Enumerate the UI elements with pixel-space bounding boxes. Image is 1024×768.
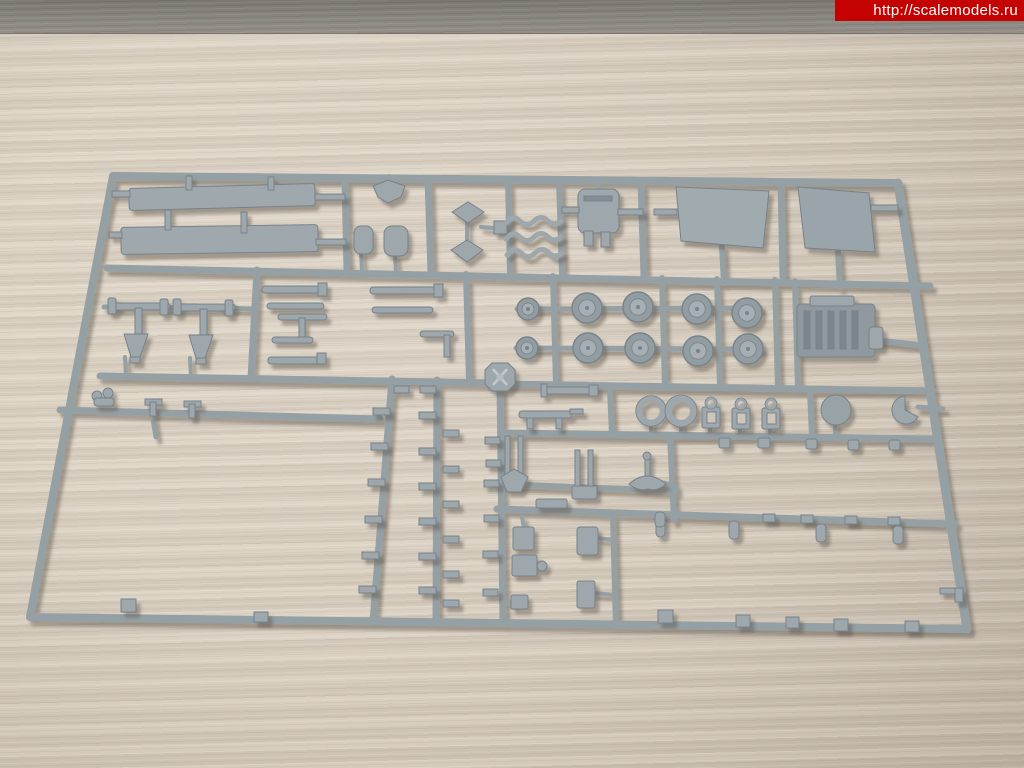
sprue-runner — [466, 274, 469, 381]
small-part-tab — [483, 551, 498, 558]
sprue-runner — [810, 391, 812, 436]
loop-box-eye — [767, 400, 776, 409]
wing-panel — [798, 187, 875, 252]
loop-box-eye — [737, 400, 746, 409]
gun-rod — [519, 411, 572, 418]
gear-spat-stem — [200, 309, 207, 335]
sprue-runner — [553, 276, 556, 385]
wing-panel — [676, 187, 769, 248]
wheel-axle — [695, 307, 699, 311]
small-part-tab — [848, 440, 859, 450]
strut-rod-link — [444, 335, 450, 357]
sprue-connector — [241, 212, 247, 233]
engine-bulkhead-arm — [618, 209, 643, 215]
small-box-part — [513, 527, 534, 550]
small-lobe-base — [94, 398, 114, 406]
small-part-tab — [419, 587, 436, 594]
strut-rod — [272, 337, 313, 343]
sprue-runner — [125, 357, 126, 377]
gear-spat-end — [225, 300, 233, 316]
cowl-ring — [639, 399, 663, 423]
gear-spat-end — [108, 298, 116, 314]
upper-wing-strip — [129, 184, 316, 211]
sprue-runner — [190, 358, 191, 378]
injection-gate-center — [497, 374, 504, 381]
sprue-runner — [775, 280, 778, 389]
small-part-tab — [365, 516, 382, 523]
fork-prong — [588, 450, 593, 489]
gun-rod-leg — [556, 418, 562, 429]
gun-rod — [545, 387, 592, 394]
small-part-tab — [254, 612, 268, 622]
sprue-connector — [268, 177, 274, 190]
sprue-runner — [597, 538, 614, 540]
sprue-connector — [109, 232, 122, 238]
gun-rod-fitting — [589, 385, 598, 396]
watermark-url: http://scalemodels.ru — [873, 2, 1018, 19]
fork-prong — [575, 450, 580, 489]
small-knob — [537, 561, 547, 571]
bracket-part — [373, 180, 405, 203]
flat-plate-part — [536, 499, 567, 508]
strut-rod — [370, 287, 441, 294]
small-part-tab — [443, 571, 459, 578]
photo-model-kit-sprue: http://scalemodels.ru — [0, 0, 1024, 768]
wing-panel-arm — [654, 209, 677, 215]
small-part-tab — [394, 386, 409, 393]
small-part-tab — [443, 501, 459, 508]
hub-diamond-part — [452, 202, 484, 223]
sprue-runner — [838, 252, 840, 287]
exhaust-manifold — [507, 250, 562, 257]
wheel-axle — [696, 349, 700, 353]
hub-diamond-part — [451, 240, 483, 262]
lower-wing-strip — [121, 225, 318, 255]
sprue-runner — [500, 383, 503, 624]
runner-stud — [816, 524, 826, 542]
small-part-tab — [420, 386, 436, 393]
small-part-tab — [362, 552, 379, 559]
sprue-runner — [641, 181, 644, 276]
small-box-part — [511, 595, 528, 609]
wheel-axle — [586, 346, 590, 350]
engine-block-rib — [828, 311, 834, 349]
small-part-tab — [371, 443, 388, 450]
small-part-tab — [419, 518, 436, 525]
strut-rod — [372, 307, 433, 313]
small-lobe-part — [103, 388, 113, 398]
small-part-tab — [484, 480, 499, 487]
small-part-tab — [719, 438, 730, 448]
wheel-axle — [636, 305, 640, 309]
sprue-parts — [92, 176, 963, 632]
small-part-tab — [845, 516, 857, 524]
runner-stud — [729, 521, 739, 539]
engine-block-rib — [804, 311, 810, 349]
small-part-tab — [889, 440, 900, 450]
gear-spat-stem — [135, 308, 142, 334]
strut-rod — [268, 357, 323, 364]
cowl-pacman-part — [892, 396, 918, 424]
small-part-tab — [905, 621, 919, 632]
plastic-sprue — [0, 0, 1024, 768]
sprue-runner — [345, 178, 347, 271]
sprue-runner — [722, 247, 724, 283]
engine-block-top — [810, 296, 854, 306]
small-part-tab — [763, 514, 775, 522]
small-part-tab — [443, 430, 459, 437]
runner-stud — [893, 526, 903, 544]
sprue-runner — [153, 419, 156, 437]
sprue-runner — [613, 517, 616, 626]
sprue-runner — [662, 278, 665, 387]
sprue-connector — [186, 176, 192, 190]
small-part-tab — [419, 553, 436, 560]
small-part-tab — [786, 617, 799, 628]
engine-block-rib — [816, 311, 822, 349]
edge-hook-part — [955, 588, 963, 602]
small-part-tab — [801, 515, 813, 523]
small-part-tab — [483, 589, 498, 596]
engine-block-lug — [869, 327, 883, 349]
gun-rod-tip — [570, 409, 583, 414]
small-part-tab — [888, 517, 900, 525]
wheel-axle — [585, 306, 589, 310]
small-part-tab — [373, 408, 390, 415]
gear-spat-cone — [124, 334, 148, 357]
small-part-tab — [443, 466, 459, 473]
small-part-tab — [736, 615, 750, 627]
wheel-axle — [746, 347, 750, 351]
cowl-ring — [669, 399, 694, 424]
small-t-part — [189, 404, 195, 418]
small-part-tab — [419, 448, 436, 455]
wheel-axle — [638, 346, 642, 350]
exhaust-manifold — [506, 218, 561, 225]
engine-bulkhead-arm — [562, 207, 579, 213]
small-part-tab — [484, 515, 499, 522]
sprue-runner — [594, 593, 615, 595]
loop-box-hole — [737, 413, 746, 424]
strut-rod-end — [434, 284, 443, 297]
sprue-connector — [316, 239, 346, 245]
loop-box-eye — [707, 399, 716, 408]
small-part-tab — [658, 610, 673, 623]
small-part-tab — [419, 412, 436, 419]
small-t-part — [150, 402, 156, 416]
loop-box-hole — [707, 412, 716, 423]
small-box-part — [512, 555, 537, 576]
small-part-tab — [758, 438, 770, 448]
engine-block-rib — [852, 311, 858, 349]
small-part-tab — [359, 586, 376, 593]
sprue-runner — [559, 180, 562, 274]
exhaust-manifold — [506, 234, 561, 241]
small-part-tab — [443, 600, 459, 607]
sprue-runner — [60, 410, 380, 419]
gun-rod-leg — [527, 418, 533, 429]
engine-bulkhead-foot — [584, 231, 593, 246]
small-part-tab — [419, 483, 436, 490]
engine-bulkhead-foot — [601, 232, 610, 247]
sprue-runner — [781, 182, 783, 277]
wheel-small-axle — [525, 346, 529, 350]
small-part-tab — [368, 479, 385, 486]
strut-rod — [267, 303, 324, 309]
gear-spat-end — [160, 299, 168, 315]
bracket-box-part — [577, 527, 598, 555]
strut-rod-link — [299, 318, 305, 339]
mini-prop-blades — [629, 476, 666, 490]
sprue-runner — [508, 180, 510, 273]
sprue-runner — [361, 253, 362, 271]
sprue-runner — [395, 255, 396, 273]
mini-prop-knob — [643, 452, 651, 460]
sprue-runner — [670, 435, 674, 520]
sprue-runner — [30, 617, 967, 629]
small-part-tab — [443, 536, 459, 543]
sprue-runner — [107, 268, 930, 286]
fork-base-box — [572, 486, 597, 499]
loop-box-hole — [767, 413, 776, 424]
gear-spat-foot — [130, 357, 140, 363]
engine-block-rib — [840, 311, 846, 349]
sprue-runner — [522, 517, 524, 528]
sprue-runner — [610, 390, 612, 434]
gear-spat-end — [173, 299, 181, 315]
wheel-small-axle — [526, 307, 530, 311]
watermark-banner: http://scalemodels.ru — [835, 0, 1024, 21]
sprue-runner — [918, 407, 943, 409]
gun-rod-fitting — [541, 384, 547, 397]
sprue-connector — [315, 194, 345, 200]
sprue-runner — [251, 270, 257, 378]
seat-half — [354, 226, 373, 254]
seat-half — [384, 226, 408, 256]
sprue-runner — [717, 279, 720, 388]
sprue-connector — [165, 210, 171, 230]
small-box-part — [577, 581, 595, 608]
sprue-runner — [497, 509, 955, 524]
strut-rod-end — [318, 283, 327, 296]
wheel-axle — [745, 311, 749, 315]
small-part-tab — [121, 599, 136, 612]
disc-part — [821, 395, 851, 425]
engine-bulkhead-detail — [584, 196, 612, 201]
wing-panel-arm — [871, 205, 898, 211]
strut-rod — [262, 286, 324, 293]
small-part-tab — [806, 439, 817, 449]
small-part-tab — [834, 619, 848, 631]
sprue-runner — [428, 179, 431, 272]
small-part-tab — [486, 460, 501, 467]
cylinder-part — [655, 512, 665, 527]
strut-rod-end — [317, 353, 326, 364]
small-part-tab — [485, 437, 500, 444]
gear-spat-cone — [189, 335, 213, 358]
sprue-connector — [112, 191, 130, 197]
gear-spat-foot — [196, 358, 206, 364]
